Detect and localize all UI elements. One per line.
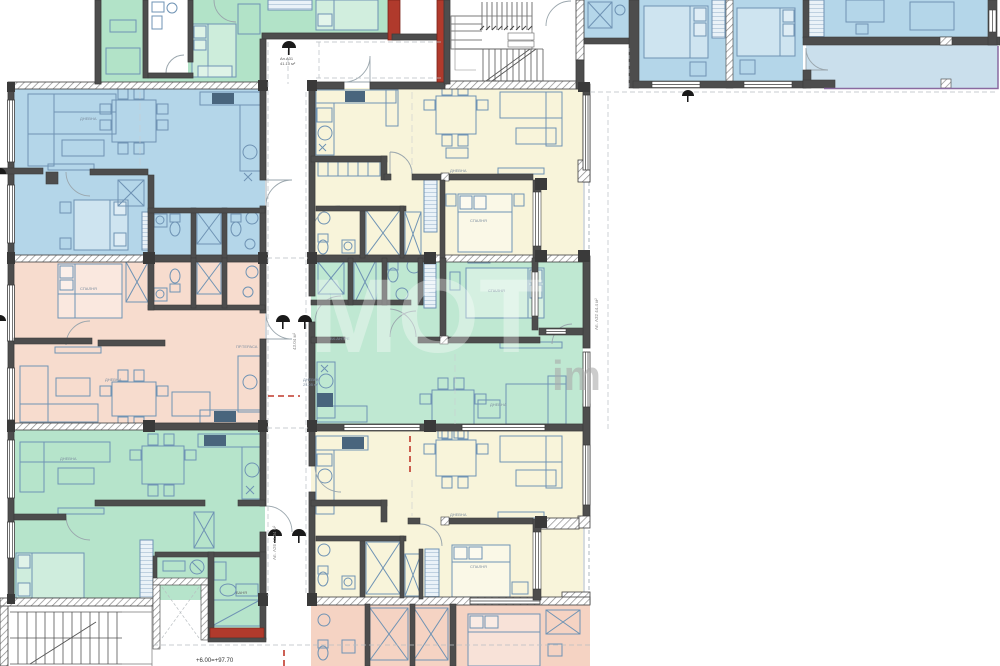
svg-text:Ап. А32 44.4 м²: Ап. А32 44.4 м²: [594, 298, 599, 330]
svg-text:43.04 м²: 43.04 м²: [292, 332, 297, 350]
svg-text:im: im: [552, 352, 601, 399]
svg-text:ДНЕВНА: ДНЕВНА: [490, 402, 507, 407]
svg-text:СПАЛНЯ: СПАЛНЯ: [470, 564, 487, 569]
svg-text:ДНЕВНА: ДНЕВНА: [450, 512, 467, 517]
svg-text:ДНЕВНА: ДНЕВНА: [450, 168, 467, 173]
svg-text:41.10 м²: 41.10 м²: [280, 61, 296, 66]
svg-text:ДНЕВНА: ДНЕВНА: [60, 456, 77, 461]
svg-text:МОТ: МОТ: [310, 258, 543, 375]
svg-text:ДНЕВНА: ДНЕВНА: [80, 116, 97, 121]
svg-text:24.05 м²: 24.05 м²: [303, 382, 319, 387]
svg-text:БАНЯ: БАНЯ: [236, 590, 247, 595]
svg-text:СПАЛНЯ: СПАЛНЯ: [470, 218, 487, 223]
svg-text:ПР.ТЕРАСА: ПР.ТЕРАСА: [236, 344, 258, 349]
svg-text:Ап. А26 43.04 м²: Ап. А26 43.04 м²: [272, 525, 277, 560]
svg-text:СПАЛНЯ: СПАЛНЯ: [80, 286, 97, 291]
svg-text:ДНЕВНА: ДНЕВНА: [105, 377, 122, 382]
svg-text:+6.00=+97.70: +6.00=+97.70: [196, 658, 234, 664]
